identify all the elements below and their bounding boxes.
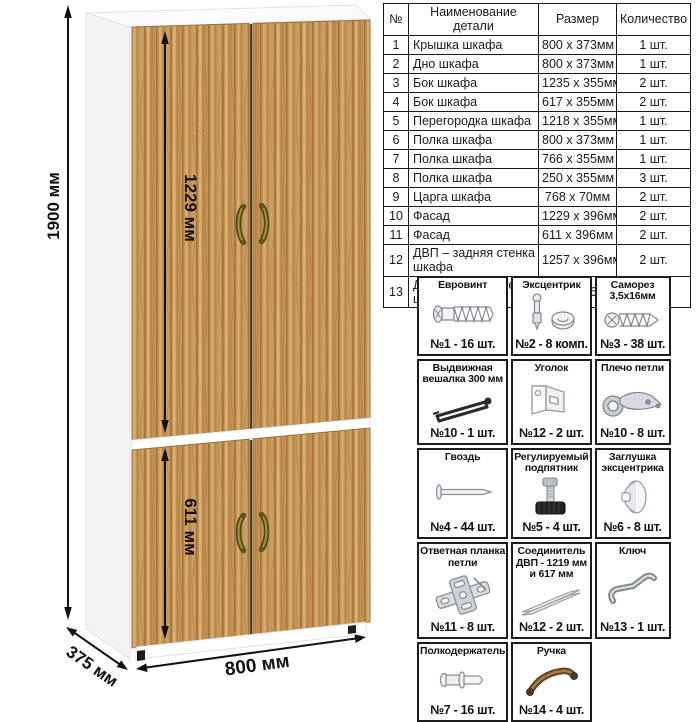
- parts-table-cell: 3 шт.: [617, 168, 691, 187]
- parts-table-cell: 766 x 355мм: [539, 149, 617, 168]
- parts-table-cell: Бок шкафа: [409, 73, 539, 92]
- parts-table-cell: 2 шт.: [617, 244, 691, 276]
- hardware-item-count: №5 - 4 шт.: [522, 520, 580, 534]
- parts-table-cell: 3: [384, 73, 409, 92]
- hardware-item-title: Уголок: [535, 363, 569, 374]
- parts-table-header-cell: №: [384, 4, 409, 36]
- hardware-item-title: Плечо петли: [601, 363, 664, 374]
- parts-table-cell: 800 x 373мм: [539, 130, 617, 149]
- parts-table-cell: 5: [384, 111, 409, 130]
- lower-right-door: [253, 428, 370, 635]
- parts-table-cell: 1257 x 396мм: [539, 244, 617, 276]
- parts-table-cell: Фасад: [409, 206, 539, 225]
- parts-table-cell: Фасад: [409, 225, 539, 244]
- hardware-item-count: №13 - 1 шт.: [600, 620, 665, 634]
- parts-table-cell: 10: [384, 206, 409, 225]
- hardware-item: Регулируемый подпятник№5 - 4 шт.: [511, 448, 591, 540]
- hardware-item: Уголок№12 - 2 шт.: [511, 359, 591, 445]
- parts-table-cell: Полка шкафа: [409, 168, 539, 187]
- hardware-item-count: №3 - 38 шт.: [600, 337, 665, 351]
- parts-table-cell: 1218 x 355мм: [539, 111, 617, 130]
- hardware-item: Гвоздь№4 - 44 шт.: [417, 448, 508, 540]
- parts-table-cell: 1 шт.: [617, 149, 691, 168]
- parts-table-cell: 611 x 396мм: [539, 225, 617, 244]
- hardware-item: Саморез 3,5х16мм№3 - 38 шт.: [595, 276, 671, 356]
- parts-table-cell: 11: [384, 225, 409, 244]
- left-foot: [137, 650, 145, 661]
- parts-table-row: 3Бок шкафа1235 x 355мм2 шт.: [384, 73, 691, 92]
- upper-right-door: [253, 20, 370, 429]
- upper-doors: [132, 20, 370, 440]
- parts-table-row: 4Бок шкафа617 x 355мм2 шт.: [384, 92, 691, 111]
- hardware-item-count: №12 - 2 шт.: [519, 426, 584, 440]
- parts-table-row: 12ДВП – задняя стенка шкафа1257 x 396мм2…: [384, 244, 691, 276]
- hinge-arm-icon: [598, 374, 668, 425]
- hardware-item-title: Полкодержатель: [420, 646, 505, 657]
- parts-table-cell: 12: [384, 244, 409, 276]
- parts-table-header-cell: Количество: [617, 4, 691, 36]
- parts-table-cell: 1 шт.: [617, 35, 691, 54]
- upper-door-height-label: 1229 мм: [181, 174, 200, 242]
- parts-table-cell: Перегородка шкафа: [409, 111, 539, 130]
- lower-door-height-label: 611 мм: [181, 498, 200, 555]
- parts-table-row: 8Полка шкафа250 x 355мм3 шт.: [384, 168, 691, 187]
- parts-table-cell: 2 шт.: [617, 206, 691, 225]
- parts-table-cell: 6: [384, 130, 409, 149]
- overall-height-label: 1900 мм: [44, 172, 63, 240]
- euro-screw-icon: [430, 291, 496, 337]
- parts-table-cell: Полка шкафа: [409, 149, 539, 168]
- depth-label: 375 мм: [63, 642, 122, 691]
- spec-sheet: 1900 мм 1229 мм 611 мм 800 мм 375 мм: [0, 0, 700, 700]
- hardware-item-title: Ответная планка петли: [420, 546, 505, 569]
- hardware-item: Эксцентрик№2 - 8 комп.: [511, 276, 591, 356]
- parts-table-cell: Полка шкафа: [409, 130, 539, 149]
- parts-table-cell: 800 x 373мм: [539, 35, 617, 54]
- parts-table-cell: 2 шт.: [617, 225, 691, 244]
- hardware-item-count: №4 - 44 шт.: [430, 520, 495, 534]
- right-foot: [348, 625, 356, 634]
- hardware-item-title: Заглушка эксцентрика: [598, 452, 668, 475]
- parts-table-row: 6Полка шкафа800 x 373мм1 шт.: [384, 130, 691, 149]
- parts-table-cell: Крышка шкафа: [409, 35, 539, 54]
- parts-table-header-cell: Наименование детали: [409, 4, 539, 36]
- parts-table-cell: 8: [384, 168, 409, 187]
- nail-icon: [431, 463, 495, 520]
- hardware-item: Ответная планка петли№11 - 8 шт.: [417, 542, 508, 639]
- corner-bracket-icon: [520, 374, 582, 425]
- hardware-item-title: Выдвижная вешалка 300 мм: [420, 363, 505, 386]
- handle-icon: [520, 658, 582, 704]
- hardware-item: Заглушка эксцентрика№6 - 8 шт.: [595, 448, 671, 540]
- parts-table-row: 1Крышка шкафа800 x 373мм1 шт.: [384, 35, 691, 54]
- parts-table-cell: 2 шт.: [617, 187, 691, 206]
- parts-table-row: 5Перегородка шкафа1218 x 355мм1 шт.: [384, 111, 691, 130]
- hardware-item-title: Регулируемый подпятник: [514, 452, 588, 475]
- parts-table-head: №Наименование деталиРазмерКоличество: [384, 4, 691, 36]
- parts-table-header-cell: Размер: [539, 4, 617, 36]
- screw-icon: [602, 303, 664, 337]
- parts-table-cell: 1229 x 396мм: [539, 206, 617, 225]
- parts-table-cell: 1 шт.: [617, 111, 691, 130]
- hardware-item-title: Эксцентрик: [522, 280, 580, 291]
- hardware-grid: Евровинт№1 - 16 шт.Эксцентрик№2 - 8 комп…: [417, 276, 658, 722]
- hardware-item-title: Ручка: [537, 646, 566, 657]
- cabinet-side-panel: [86, 13, 130, 659]
- hardware-item: Полкодержатель№7 - 16 шт.: [417, 642, 508, 722]
- parts-table-cell: 7: [384, 149, 409, 168]
- hardware-item-count: №11 - 8 шт.: [430, 620, 494, 634]
- parts-table-row: 7Полка шкафа766 x 355мм1 шт.: [384, 149, 691, 168]
- hardware-item-title: Соединитель ДВП - 1219 мм и 617 мм: [514, 546, 588, 580]
- parts-table-cell: 9: [384, 187, 409, 206]
- parts-table-body: 1Крышка шкафа800 x 373мм1 шт.2Дно шкафа8…: [384, 35, 691, 308]
- pullout-hanger-icon: [429, 386, 497, 426]
- parts-table-cell: Царга шкафа: [409, 187, 539, 206]
- hardware-item: Плечо петли№10 - 8 шт.: [595, 359, 671, 445]
- hardware-item-count: №7 - 16 шт.: [430, 703, 495, 717]
- parts-table-cell: 4: [384, 92, 409, 111]
- parts-table-cell: 1 шт.: [617, 54, 691, 73]
- hardware-item: Ручка№14 - 4 шт.: [511, 642, 591, 722]
- parts-table-cell: 1235 x 355мм: [539, 73, 617, 92]
- hinge-plate-icon: [430, 569, 496, 620]
- parts-table-cell: 1: [384, 35, 409, 54]
- hardware-item-title: Евровинт: [438, 280, 487, 291]
- parts-table-cell: 13: [384, 276, 409, 308]
- parts-table-row: 11Фасад611 x 396мм2 шт.: [384, 225, 691, 244]
- parts-table-cell: Дно шкафа: [409, 54, 539, 73]
- cam-cover-icon: [610, 474, 656, 520]
- hardware-item-title: Саморез 3,5х16мм: [598, 280, 668, 303]
- hardware-item-count: №10 - 8 шт.: [600, 426, 665, 440]
- hardware-item-count: №14 - 4 шт.: [519, 703, 584, 717]
- hardware-item: Соединитель ДВП - 1219 мм и 617 мм№12 - …: [511, 542, 591, 639]
- hardware-item-count: №10 - 1 шт.: [430, 426, 495, 440]
- hardware-item-count: №1 - 16 шт.: [430, 337, 495, 351]
- parts-table-cell: 2: [384, 54, 409, 73]
- hardware-item-title: Ключ: [619, 546, 646, 557]
- hardware-item-title: Гвоздь: [445, 452, 480, 463]
- hardware-item-count: №6 - 8 шт.: [603, 520, 661, 534]
- parts-table-cell: 1 шт.: [617, 130, 691, 149]
- parts-table-cell: ДВП – задняя стенка шкафа: [409, 244, 539, 276]
- parts-table-cell: 2 шт.: [617, 73, 691, 92]
- hardware-item-count: №2 - 8 комп.: [515, 337, 588, 351]
- parts-table-cell: 2 шт.: [617, 92, 691, 111]
- parts-table-cell: 617 x 355мм: [539, 92, 617, 111]
- parts-table-row: 2Дно шкафа800 x 373мм1 шт.: [384, 54, 691, 73]
- shelf-pin-icon: [434, 658, 492, 704]
- adjustable-foot-icon: [523, 474, 579, 520]
- hardware-item: Ключ№13 - 1 шт.: [595, 542, 671, 639]
- wardrobe-drawing: 1900 мм 1229 мм 611 мм 800 мм 375 мм: [0, 0, 420, 700]
- hardware-item: Евровинт№1 - 16 шт.: [417, 276, 508, 356]
- parts-table-cell: 250 x 355мм: [539, 168, 617, 187]
- parts-table-row: 9Царга шкафа768 x 70мм2 шт.: [384, 187, 691, 206]
- parts-table-row: 10Фасад1229 x 396мм2 шт.: [384, 206, 691, 225]
- parts-table-cell: Бок шкафа: [409, 92, 539, 111]
- parts-table-cell: 768 x 70мм: [539, 187, 617, 206]
- hardware-item-count: №12 - 2 шт.: [519, 620, 584, 634]
- hardware-item: Выдвижная вешалка 300 мм№10 - 1 шт.: [417, 359, 508, 445]
- hdf-connector-icon: [516, 580, 586, 620]
- parts-table: №Наименование деталиРазмерКоличество 1Кр…: [383, 3, 691, 308]
- parts-table-cell: 800 x 373мм: [539, 54, 617, 73]
- cam-lock-icon: [518, 291, 584, 337]
- hex-key-icon: [601, 558, 665, 621]
- dimension-overall-height: [64, 5, 72, 620]
